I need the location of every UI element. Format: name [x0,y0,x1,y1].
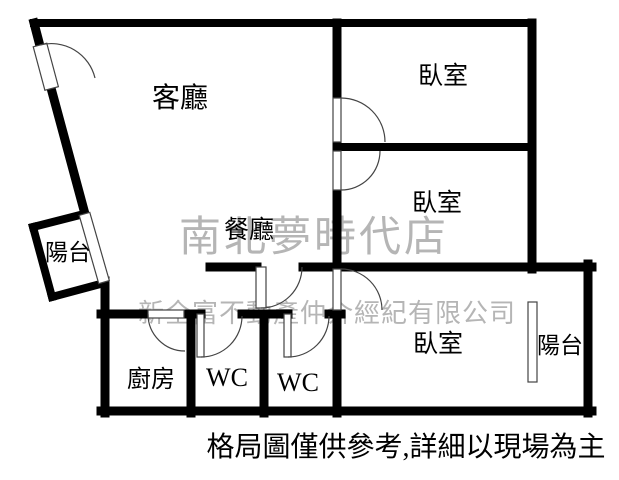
label-dining-room: 餐廳 [224,216,274,244]
hallway-door-leaf [256,267,266,308]
label-balcony-right: 陽台 [537,333,583,358]
disclaimer-text: 格局圖僅供參考,詳細以現場為主 [206,431,605,463]
label-living-room: 客廳 [152,82,208,114]
label-kitchen: 廚房 [127,366,175,393]
label-bedroom-mid: 臥室 [412,189,462,217]
label-bedroom-bottom: 臥室 [413,330,463,358]
watermark-store-name: 南北夢時代店 [179,215,449,261]
kitchen-door-leaf [148,310,184,318]
label-wc2: WC [277,368,319,397]
wc1-door-leaf [197,314,204,357]
balcony-right-window [528,302,537,382]
bedroom-top-door-leaf [333,98,341,142]
bedroom-mid-door-leaf [333,151,341,190]
bedroom-bottom-door-leaf [333,269,341,310]
floor-plan: 南北夢時代店 新全富不動產仲介經紀有限公司 [0,0,619,480]
label-wc1: WC [206,363,248,392]
floor-plan-canvas: 南北夢時代店 新全富不動產仲介經紀有限公司 [0,0,619,480]
label-bedroom-top: 臥室 [418,62,468,90]
wall-slant-upper [34,23,40,46]
wc2-door-leaf [284,314,291,357]
label-balcony-left: 陽台 [45,240,91,265]
